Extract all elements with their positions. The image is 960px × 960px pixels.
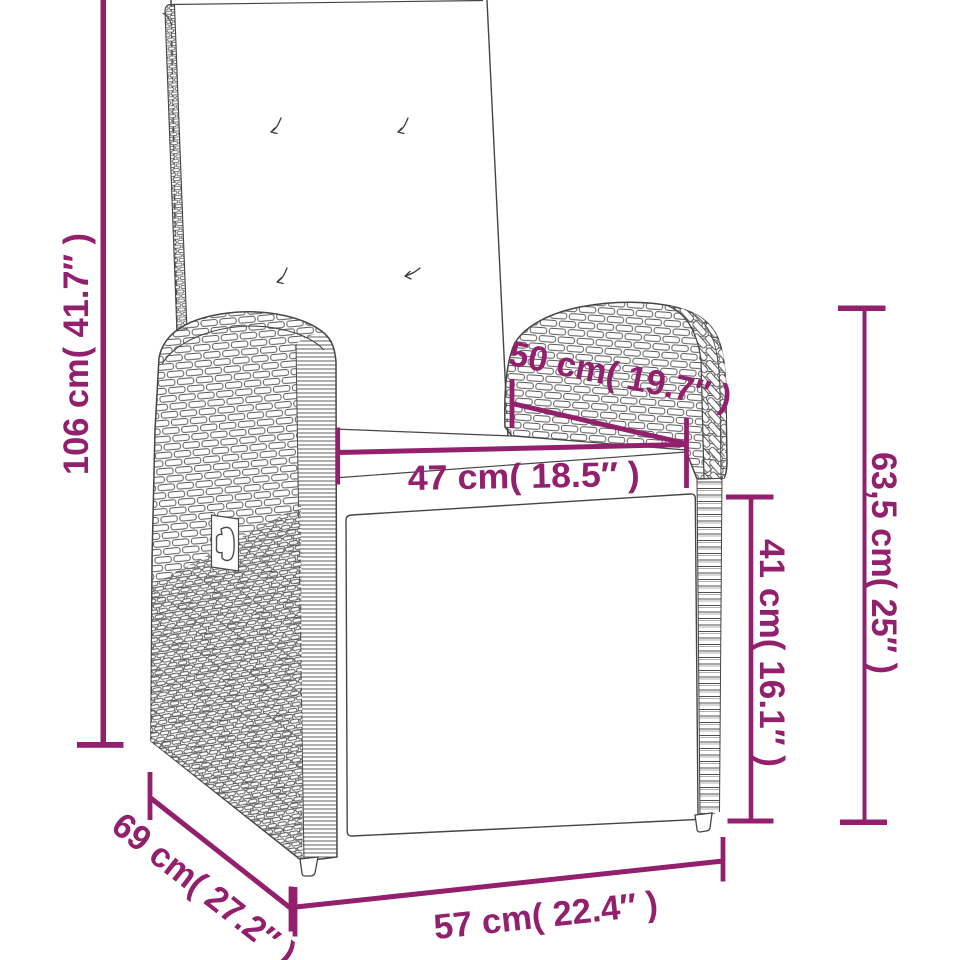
svg-text:41 cm( 16.1″ ): 41 cm( 16.1″ ) <box>752 539 791 767</box>
svg-text:47 cm( 18.5″ ): 47 cm( 18.5″ ) <box>407 455 640 498</box>
svg-text:63,5 cm( 25″ ): 63,5 cm( 25″ ) <box>864 452 903 674</box>
svg-text:106 cm( 41.7″ ): 106 cm( 41.7″ ) <box>57 233 96 475</box>
